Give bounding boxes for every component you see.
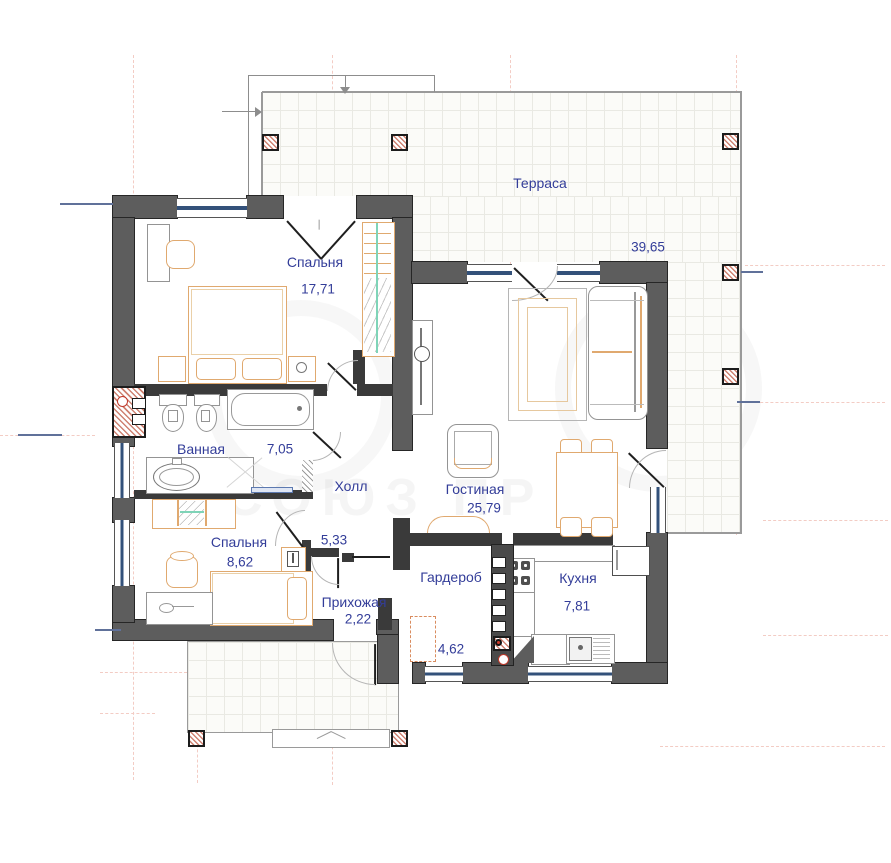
pillow <box>242 358 282 380</box>
faucet <box>172 458 182 465</box>
roof-slope-arrow-down <box>340 87 350 94</box>
exterior-wall <box>113 586 134 622</box>
exterior-wall <box>113 498 134 522</box>
column <box>391 134 408 151</box>
exterior-wall <box>647 283 667 448</box>
socket-icon <box>296 362 307 373</box>
ottoman <box>427 516 490 533</box>
flue-notch <box>492 573 506 584</box>
exterior-wall <box>612 663 667 683</box>
window <box>557 264 600 282</box>
axis-line <box>763 635 888 636</box>
wardrobe-rail <box>376 223 378 353</box>
electrical-panel-icon <box>292 553 294 563</box>
fridge <box>612 546 650 576</box>
pillow <box>196 358 236 380</box>
exterior-wall <box>600 262 667 283</box>
column <box>188 730 205 747</box>
wardrobe-divider <box>205 500 207 526</box>
toilet-drain <box>168 410 178 422</box>
room-label-living: Гостиная <box>446 481 505 497</box>
bed-blanket <box>212 573 294 624</box>
corner-cabinet <box>510 636 534 663</box>
terrace-floor <box>412 196 741 262</box>
room-label-kitchen: Кухня <box>559 570 596 586</box>
stove-burner <box>521 561 530 570</box>
room-area-kitchen: 7,81 <box>564 599 590 614</box>
appliance-dashed <box>410 616 436 662</box>
boiler-dot-center <box>497 641 500 644</box>
room-label-bedroom2: Спальня <box>211 534 267 550</box>
column <box>262 134 279 151</box>
column <box>391 730 408 747</box>
column <box>722 133 739 150</box>
vent-ring <box>498 654 509 665</box>
room-label-entry: Прихожая <box>322 594 387 610</box>
axis-line <box>100 713 155 714</box>
room-label-bedroom1: Спальня <box>287 254 343 270</box>
roof-slope-arrow-right <box>255 107 262 117</box>
terrace-floor <box>667 262 741 533</box>
room-label-terrace: Терраса <box>513 175 567 191</box>
column <box>722 368 739 385</box>
interior-wall <box>408 533 502 546</box>
chair-back <box>170 551 194 561</box>
sofa-armrest <box>590 300 644 301</box>
wardrobe-hangers <box>179 501 204 525</box>
dining-chair <box>560 517 582 537</box>
room-area-terrace: 39,65 <box>631 240 665 255</box>
wardrobe-rail <box>180 511 204 513</box>
room-area-wardrobe: 4,62 <box>438 642 464 657</box>
axis-line <box>100 672 187 673</box>
flue-notch <box>492 621 506 632</box>
room-area-entry: 2,22 <box>345 612 371 627</box>
sink-drainboard <box>593 638 610 659</box>
exterior-wall <box>247 196 283 218</box>
tv-stand <box>412 320 433 415</box>
terrace-outline <box>667 532 741 534</box>
flue-notch <box>492 589 506 600</box>
window <box>528 666 612 682</box>
room-area-hall: 5,33 <box>321 533 347 548</box>
axis-line <box>745 265 885 266</box>
bath-mat <box>251 487 293 493</box>
sofa-accent <box>640 296 642 408</box>
room-label-wardrobe: Гардероб <box>420 569 482 585</box>
terrace-outline <box>262 91 742 93</box>
interior-wall <box>393 518 410 570</box>
tv-screen <box>414 346 430 362</box>
vent-ring <box>117 396 128 407</box>
exterior-wall <box>413 663 425 683</box>
rug-inner <box>527 307 568 402</box>
chair <box>166 240 195 269</box>
pillow <box>287 577 307 620</box>
floor-plan: СОЮЗ ПР <box>0 0 891 863</box>
roof-slope-arrow-right <box>222 111 256 112</box>
interior-wall <box>357 384 393 396</box>
window <box>650 487 666 533</box>
sofa-divider <box>592 351 632 353</box>
exterior-wall <box>113 218 134 386</box>
terrace-floor <box>262 92 741 196</box>
exterior-wall <box>412 262 467 283</box>
desk-cord <box>172 606 194 607</box>
sink-faucet <box>578 645 583 650</box>
door-swing-arc <box>311 556 339 585</box>
desk-lamp <box>159 603 174 613</box>
armchair-cushion <box>454 458 492 469</box>
kitchen-counter <box>531 634 570 665</box>
window <box>425 666 463 682</box>
dimension-tick <box>737 401 760 403</box>
exterior-wall <box>463 663 528 683</box>
flue-notch <box>492 605 506 616</box>
roof-line <box>434 75 435 92</box>
room-label-bathroom: Ванная <box>177 441 225 457</box>
desk <box>146 592 213 625</box>
exterior-wall <box>357 196 412 218</box>
stove-burner <box>521 576 530 585</box>
sofa-back <box>634 292 636 412</box>
room-area-living: 25,79 <box>467 501 501 516</box>
axis-line <box>745 402 885 403</box>
bidet-drain <box>201 410 210 422</box>
door-center-tick <box>318 220 319 230</box>
washbasin-inner <box>159 468 194 486</box>
chimney-notch <box>132 398 146 409</box>
roof-line <box>248 75 435 76</box>
dimension-tick <box>741 271 763 273</box>
dimension-tick <box>95 629 121 631</box>
window <box>114 443 130 498</box>
room-area-bedroom2: 8,62 <box>227 555 253 570</box>
chimney-block <box>112 386 146 438</box>
folding-door <box>302 460 313 492</box>
exterior-wall <box>393 218 412 450</box>
bathtub-drain <box>297 406 302 411</box>
flue-notch <box>492 557 506 568</box>
window <box>114 520 130 586</box>
room-label-hall: Холл <box>335 478 368 494</box>
chimney-notch <box>132 414 146 425</box>
room-area-bathroom: 7,05 <box>267 442 293 457</box>
fridge-line <box>616 550 618 570</box>
exterior-wall <box>378 630 398 683</box>
column <box>722 264 739 281</box>
dimension-tick <box>60 203 113 205</box>
bed-blanket <box>191 289 283 355</box>
room-area-bedroom1: 17,71 <box>301 282 335 297</box>
exterior-wall <box>647 533 667 683</box>
window <box>177 198 247 218</box>
sofa-armrest <box>590 404 644 405</box>
tv-stem <box>420 328 422 405</box>
door-leaf <box>352 556 390 558</box>
dining-chair <box>591 517 613 537</box>
exterior-wall <box>113 196 177 218</box>
sofa <box>588 286 648 420</box>
axis-line <box>763 520 888 521</box>
dimension-tick <box>18 434 62 436</box>
window <box>467 264 512 282</box>
axis-line <box>660 746 885 747</box>
terrace-outline <box>740 91 742 534</box>
nightstand <box>158 356 186 382</box>
roof-line <box>248 75 249 196</box>
